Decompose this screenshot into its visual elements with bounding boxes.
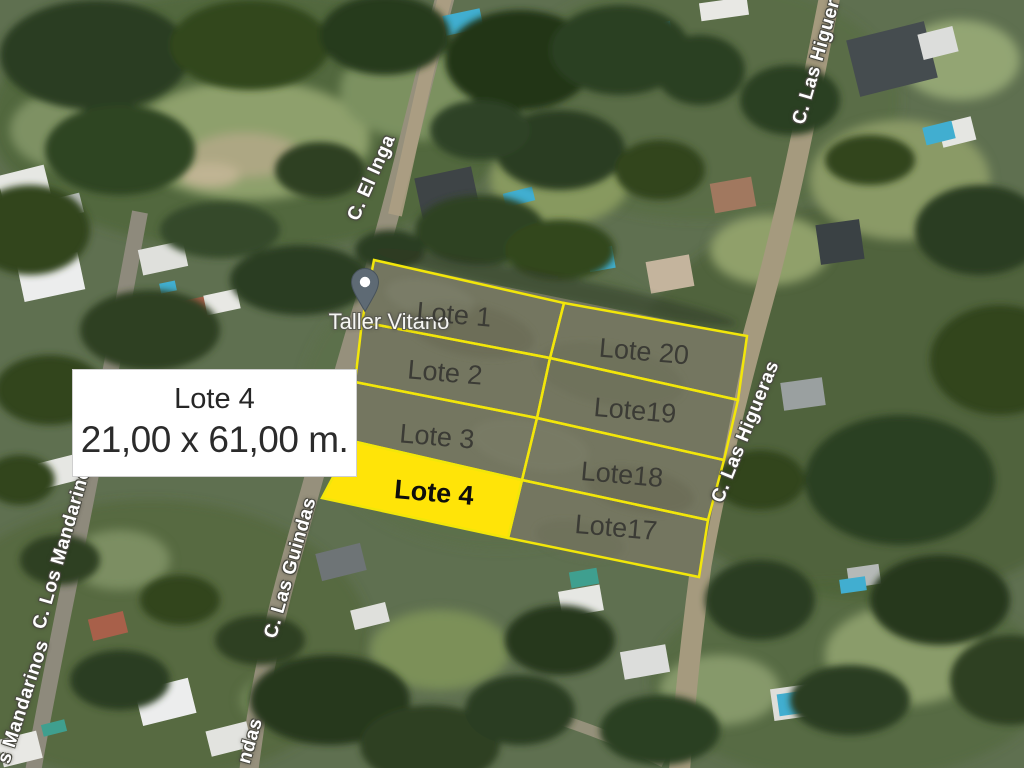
tree-cluster [215,615,305,665]
house-roof [815,219,864,265]
tree-cluster [430,100,530,160]
tree-cluster [870,555,1010,645]
tree-cluster [740,65,840,135]
tree-cluster [790,665,910,735]
tree-cluster [465,675,575,745]
pin-dot-icon [360,277,370,287]
house-roof [780,377,825,411]
lot-info-box: Lote 4 21,00 x 61,00 m. [72,369,357,477]
tree-cluster [170,0,330,90]
tree-cluster [615,140,705,200]
tree-cluster [70,650,170,710]
tree-cluster [20,535,100,585]
tree-cluster [45,105,195,195]
tree-cluster [805,415,995,545]
tree-cluster [825,135,915,185]
lot-info-title: Lote 4 [174,384,255,416]
tree-cluster [275,142,365,198]
tree-cluster [505,605,615,675]
tree-cluster [600,695,720,765]
tree-cluster [655,35,745,105]
tree-cluster [715,450,805,510]
tree-cluster [80,290,220,370]
tree-cluster [230,245,370,315]
satellite-map: C. El Inga C. Las Higuer C. Las Higueras… [0,0,1024,768]
lot-info-dimensions: 21,00 x 61,00 m. [81,419,349,462]
tree-cluster [0,0,190,110]
tree-cluster [160,202,280,258]
tree-cluster [705,560,815,640]
tree-cluster [140,575,220,625]
